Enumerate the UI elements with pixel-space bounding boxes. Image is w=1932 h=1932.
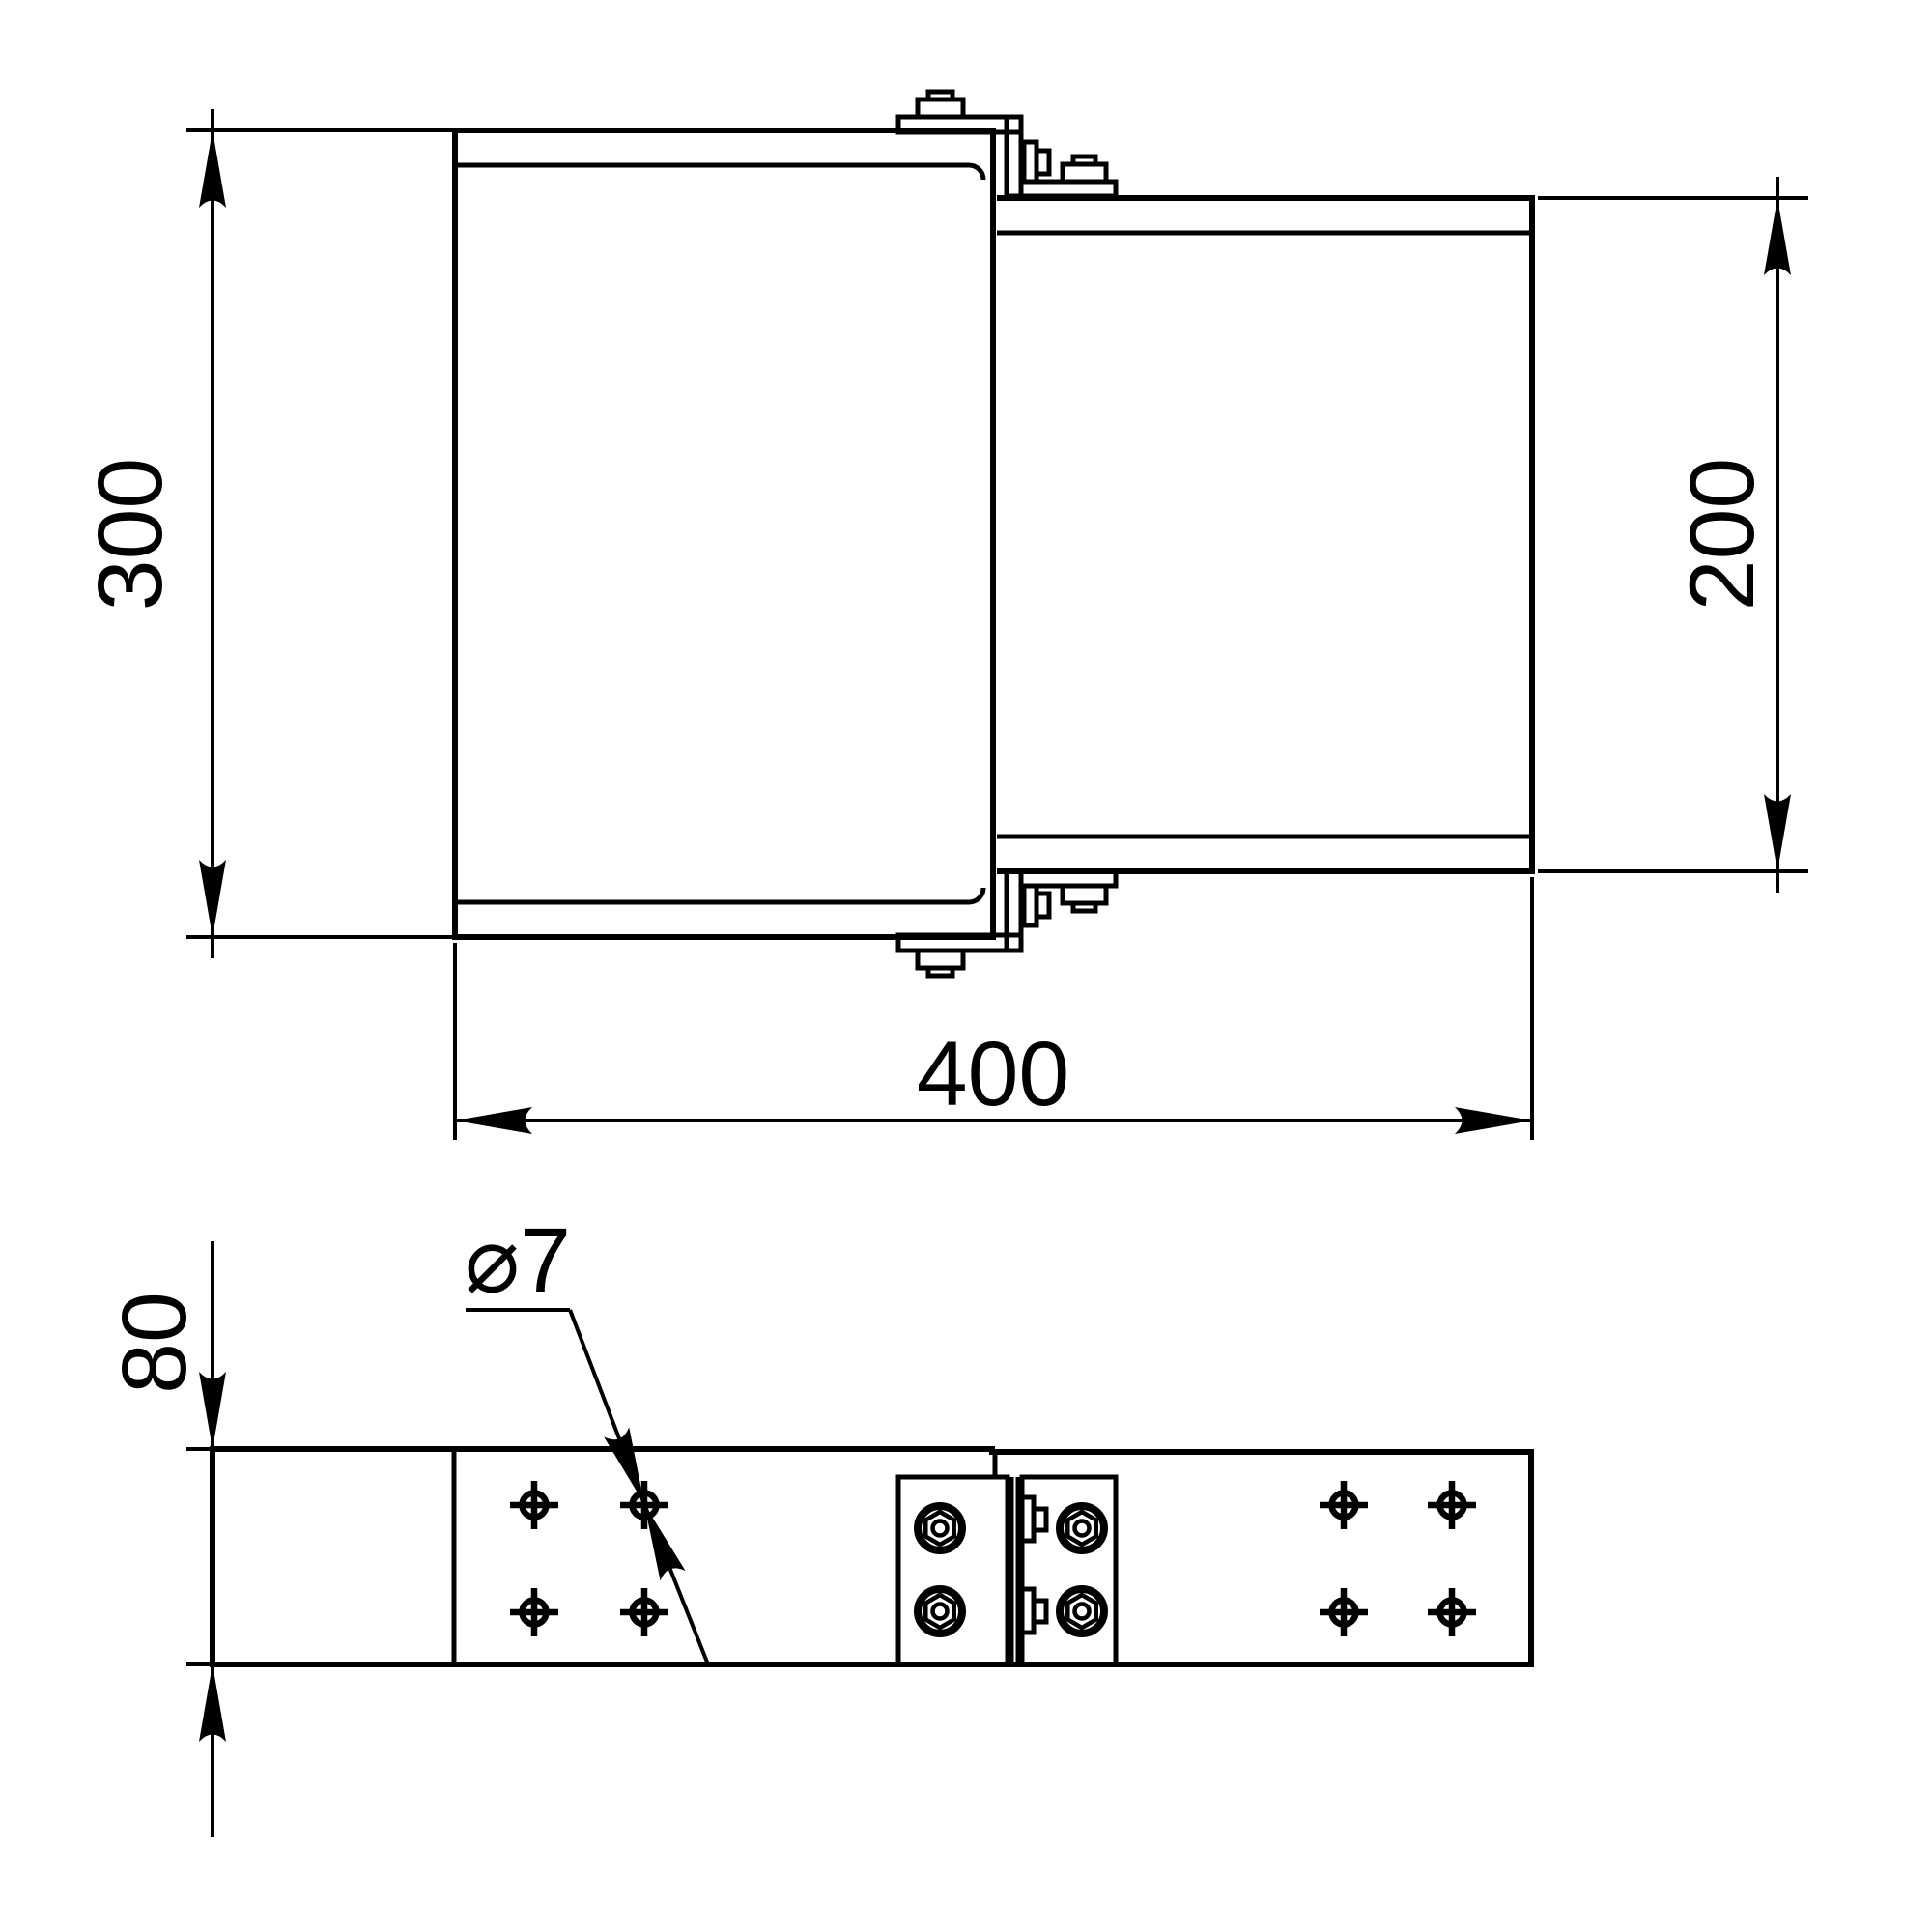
right-duct-outline bbox=[997, 198, 1532, 871]
dimension-arrow bbox=[1764, 794, 1791, 871]
bolt-cap bbox=[1073, 156, 1095, 164]
dim-300-label: 300 bbox=[79, 458, 182, 611]
bolt-hole-symbol bbox=[510, 1481, 558, 1529]
bolt-hole-symbol bbox=[1320, 1481, 1368, 1529]
left-duct-flange-lip-bottom bbox=[969, 888, 983, 902]
dimension-arrow bbox=[1455, 1107, 1532, 1134]
dimension-arrow bbox=[199, 1664, 226, 1742]
bolt-fastener bbox=[1060, 1589, 1104, 1634]
left-duct bbox=[455, 130, 993, 937]
left-duct-flange-lip-top bbox=[969, 165, 983, 180]
bolt-fastener bbox=[918, 1506, 962, 1550]
leader-arrow bbox=[632, 1499, 686, 1581]
bolt-hole-symbol bbox=[1428, 1481, 1476, 1529]
bottom-angle-bracket bbox=[898, 871, 1116, 976]
dim-80: 80 bbox=[103, 1241, 226, 1837]
bolt-cap bbox=[1073, 903, 1095, 911]
dim-200-label: 200 bbox=[1671, 458, 1774, 611]
bolt-head bbox=[918, 99, 963, 117]
right-bracket-plate bbox=[1022, 1477, 1116, 1664]
bolt-head bbox=[1063, 164, 1106, 182]
left-duct-outline bbox=[455, 130, 993, 937]
bolt-fastener bbox=[918, 1589, 962, 1634]
side-bolt-nut bbox=[1037, 894, 1049, 917]
bottom-view bbox=[213, 1449, 1531, 1664]
bolt-cap bbox=[928, 92, 952, 99]
side-bolt-nut bbox=[1034, 1601, 1046, 1622]
drawing-canvas: 300 200 400 80 bbox=[0, 0, 1932, 1932]
top-angle-bracket bbox=[898, 92, 1116, 196]
side-bolt-nut bbox=[1034, 1509, 1046, 1530]
bolt-hole-symbol bbox=[1428, 1588, 1476, 1636]
bolt-head bbox=[1063, 886, 1106, 903]
bolt-fastener bbox=[1060, 1506, 1104, 1550]
top-view bbox=[455, 92, 1532, 976]
side-bolt-nut bbox=[1037, 151, 1049, 174]
hole-diameter-callout: ⌀7 bbox=[465, 1209, 708, 1664]
bolt-head bbox=[918, 951, 963, 968]
flange-seam-lines bbox=[1011, 1477, 1018, 1664]
dimension-arrow bbox=[199, 130, 226, 208]
bolt-cap bbox=[928, 968, 952, 976]
bolt-hole-symbol bbox=[510, 1588, 558, 1636]
dimension-arrow bbox=[1764, 198, 1791, 275]
bolt-hole-symbol bbox=[620, 1588, 668, 1636]
dim-300: 300 bbox=[79, 109, 455, 958]
bolt-hole-symbol bbox=[1320, 1588, 1368, 1636]
strip-outline bbox=[213, 1449, 1531, 1664]
right-duct bbox=[997, 198, 1532, 871]
dim-400-label: 400 bbox=[917, 1023, 1070, 1125]
hole-callout-label: ⌀7 bbox=[465, 1209, 571, 1312]
dim-200: 200 bbox=[1538, 177, 1808, 893]
drawing-page: 300 200 400 80 bbox=[0, 0, 1932, 1932]
left-bracket-plate bbox=[898, 1477, 1008, 1664]
dim-80-label: 80 bbox=[103, 1292, 206, 1394]
dimension-arrow bbox=[455, 1107, 532, 1134]
dimension-arrow bbox=[199, 860, 226, 937]
